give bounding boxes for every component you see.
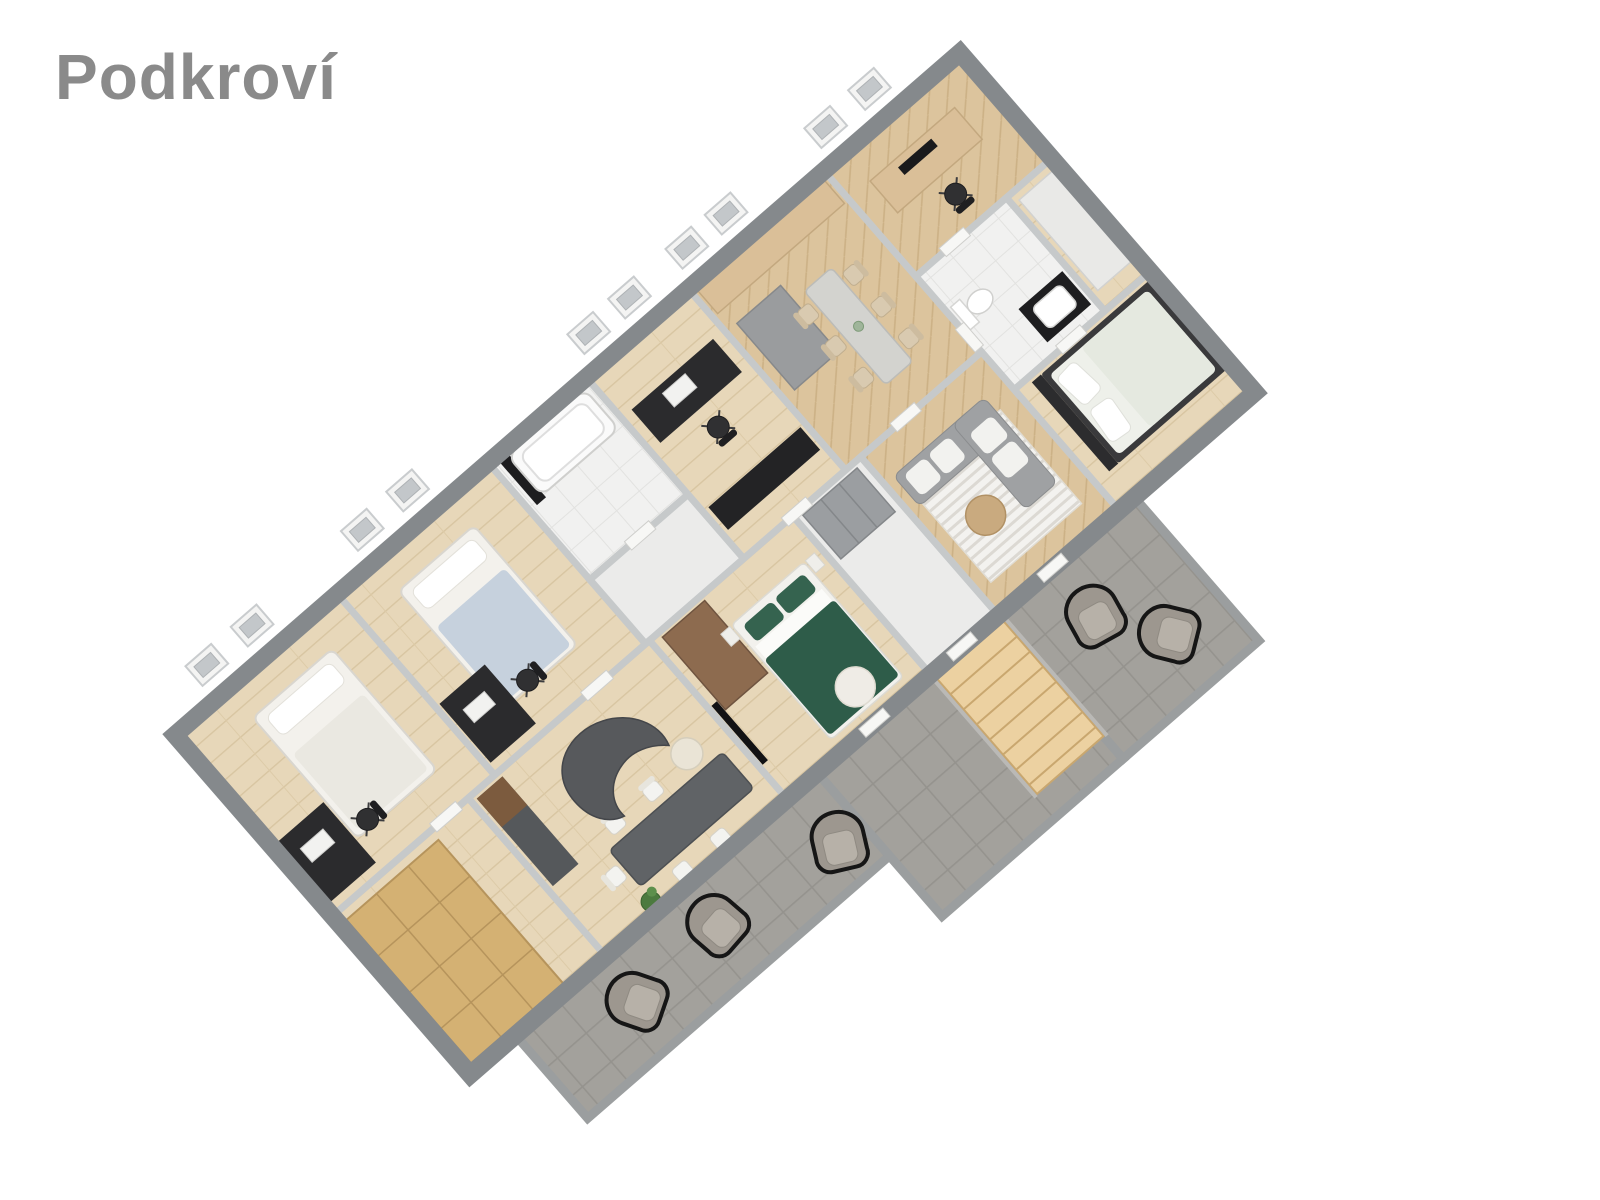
floorplan-image (0, 0, 1600, 1200)
floorplan-rotated-group (145, 19, 1379, 1200)
roof-window (567, 312, 610, 354)
roof-window (185, 644, 228, 686)
roof-window (804, 106, 847, 148)
roof-window (386, 469, 429, 511)
roof-window (705, 193, 748, 235)
roof-window (231, 605, 274, 647)
roof-window (341, 509, 384, 551)
roof-window (848, 68, 891, 110)
page: Podkroví (0, 0, 1600, 1200)
roof-window (608, 277, 651, 319)
roof-window (665, 227, 708, 269)
